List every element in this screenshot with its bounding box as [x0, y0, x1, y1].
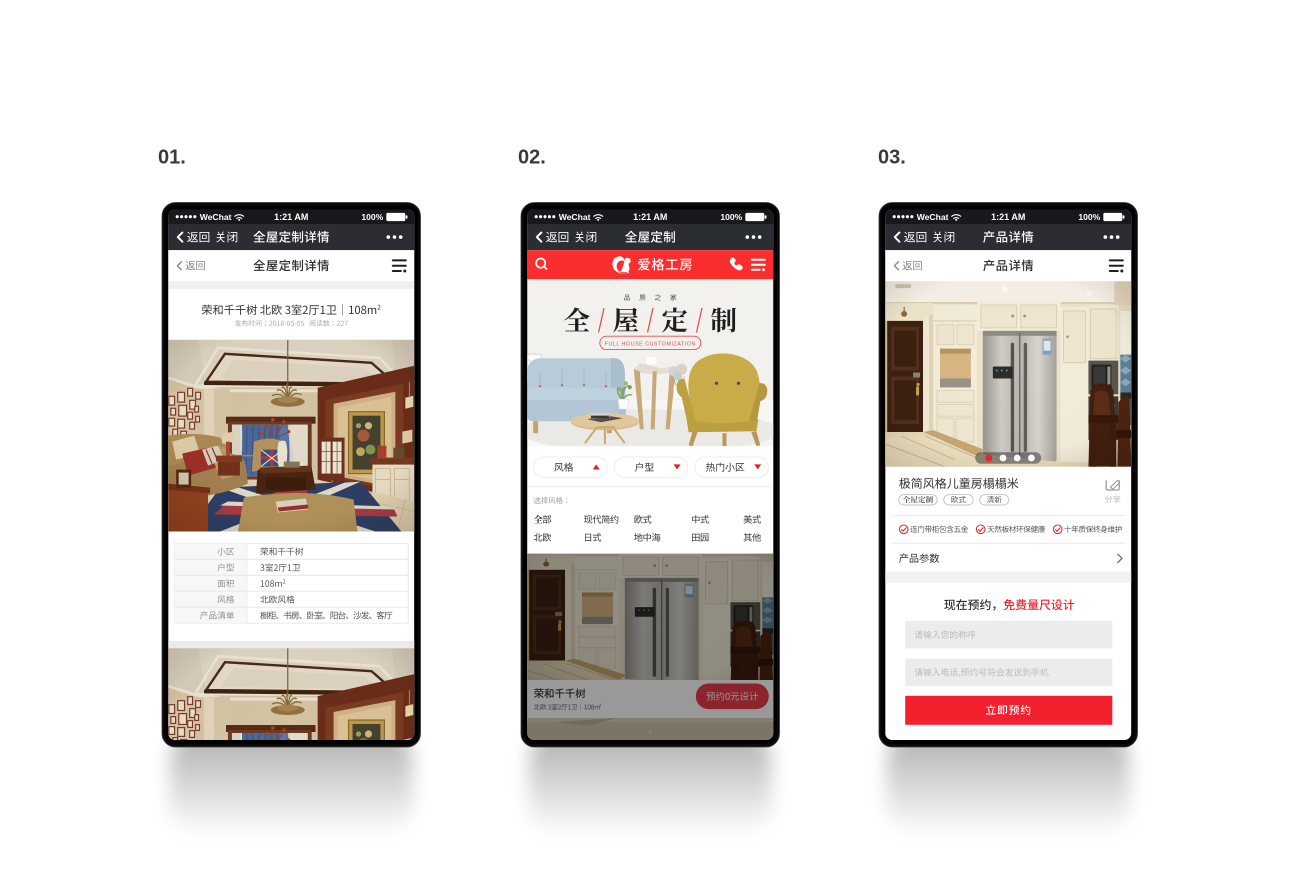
svg-text:100%: 100% — [720, 212, 742, 222]
svg-text:1:21 AM: 1:21 AM — [274, 212, 308, 222]
svg-text:03.: 03. — [878, 147, 906, 169]
svg-text:1:21 AM: 1:21 AM — [991, 212, 1025, 222]
svg-text:WeChat: WeChat — [200, 212, 232, 222]
svg-text:1:21 AM: 1:21 AM — [633, 212, 667, 222]
svg-text:WeChat: WeChat — [917, 212, 949, 222]
svg-text:100%: 100% — [361, 212, 383, 222]
svg-text:02.: 02. — [518, 147, 546, 169]
svg-text:FULL HOUSE CUSTOMIZATION: FULL HOUSE CUSTOMIZATION — [605, 341, 696, 347]
svg-text:01.: 01. — [158, 147, 186, 169]
svg-text:100%: 100% — [1078, 212, 1100, 222]
svg-text:WeChat: WeChat — [559, 212, 591, 222]
